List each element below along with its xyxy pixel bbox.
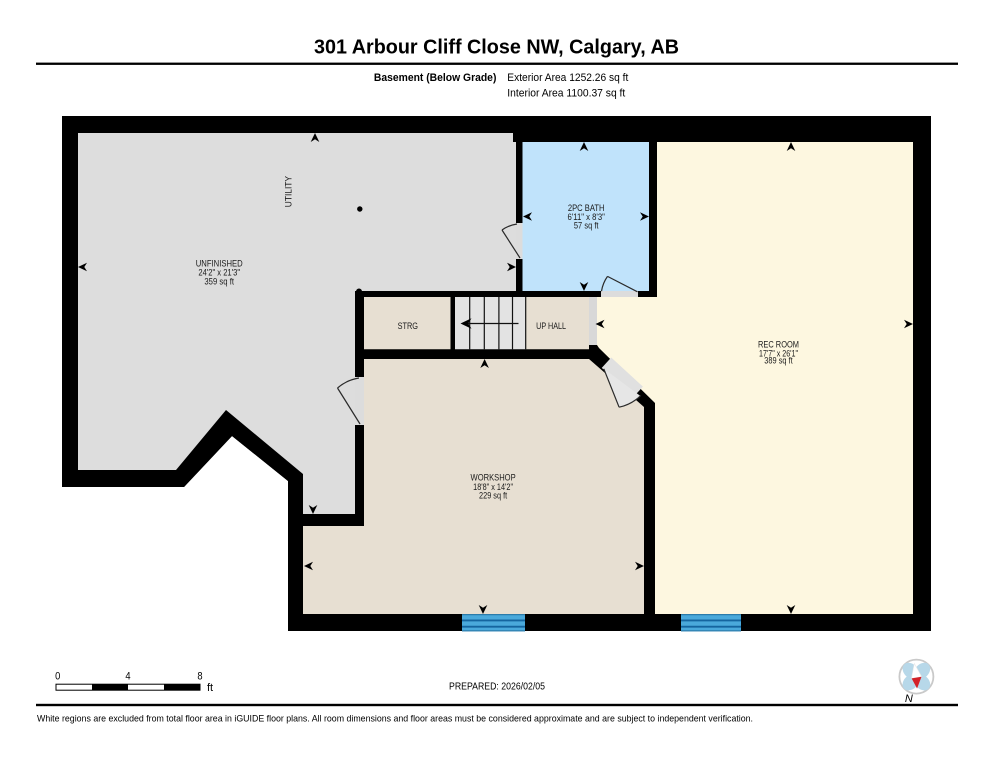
svg-text:229 sq ft: 229 sq ft	[479, 490, 507, 501]
svg-text:Exterior Area 1252.26 sq ft: Exterior Area 1252.26 sq ft	[507, 72, 628, 84]
svg-text:UP HALL: UP HALL	[536, 321, 566, 332]
svg-text:359 sq ft: 359 sq ft	[204, 276, 234, 287]
svg-text:4: 4	[125, 671, 130, 683]
svg-text:Interior Area 1100.37 sq ft: Interior Area 1100.37 sq ft	[507, 87, 625, 99]
svg-text:N: N	[905, 693, 913, 705]
svg-text:Basement (Below Grade): Basement (Below Grade)	[374, 72, 497, 84]
svg-text:0: 0	[55, 671, 60, 683]
svg-text:ft: ft	[207, 682, 213, 694]
svg-text:UTILITY: UTILITY	[283, 175, 294, 207]
svg-text:PREPARED: 2026/02/05: PREPARED: 2026/02/05	[449, 680, 545, 692]
svg-text:57 sq ft: 57 sq ft	[574, 221, 599, 232]
svg-text:White regions are excluded fro: White regions are excluded from total fl…	[37, 714, 753, 724]
svg-text:301 Arbour Cliff Close NW, Cal: 301 Arbour Cliff Close NW, Calgary, AB	[314, 37, 679, 59]
svg-text:STRG: STRG	[398, 321, 418, 332]
svg-text:8: 8	[197, 671, 202, 683]
svg-text:389 sq ft: 389 sq ft	[764, 356, 793, 367]
